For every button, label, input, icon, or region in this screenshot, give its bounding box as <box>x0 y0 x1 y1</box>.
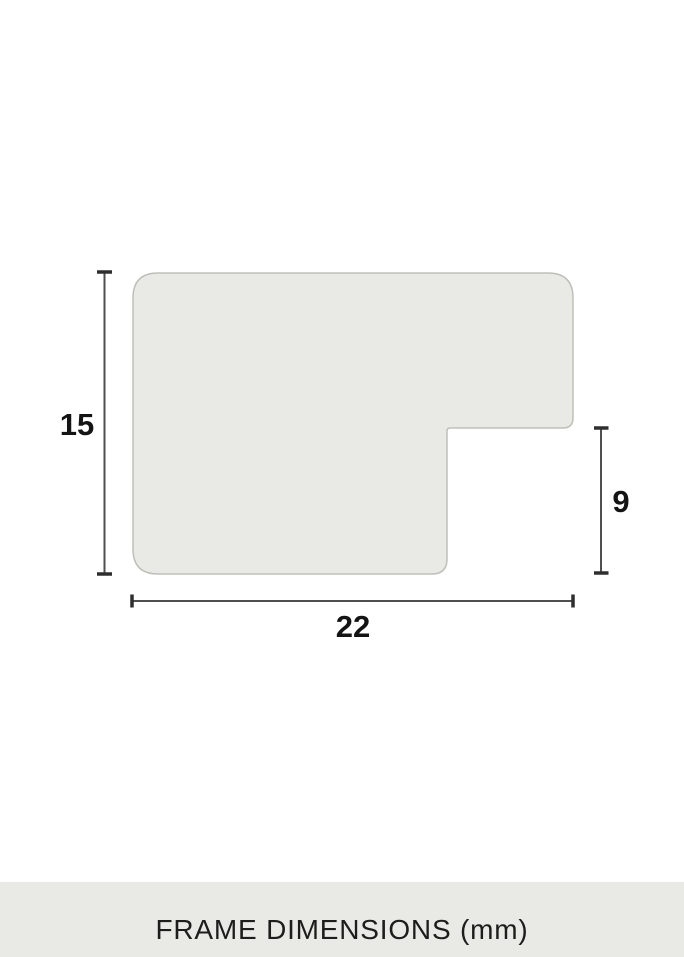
width-dimension-line <box>132 595 573 608</box>
notch-dimension-label: 9 <box>612 484 629 519</box>
footer-caption: FRAME DIMENSIONS (mm) <box>155 914 528 946</box>
footer-bar: FRAME DIMENSIONS (mm) <box>0 882 684 957</box>
height-dimension-line <box>97 272 112 574</box>
width-dimension-label: 22 <box>336 609 370 644</box>
frame-cross-section-shape <box>133 273 573 574</box>
height-dimension-label: 15 <box>60 407 94 442</box>
frame-dimension-figure: 15 9 22 FRAME DIMENSIONS (mm) <box>0 0 684 957</box>
notch-dimension-line <box>594 428 609 573</box>
frame-profile-diagram: 15 9 22 <box>0 0 684 882</box>
